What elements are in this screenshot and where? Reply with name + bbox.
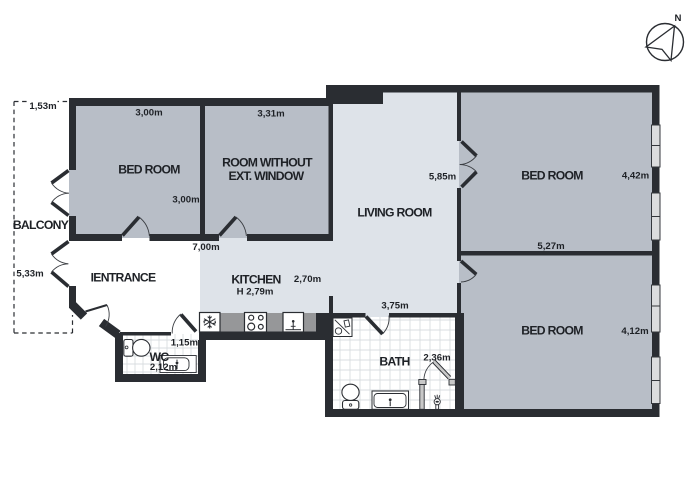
svg-text:BED ROOM: BED ROOM (521, 324, 583, 338)
svg-text:EXT. WINDOW: EXT. WINDOW (229, 169, 305, 183)
svg-text:4,12m: 4,12m (621, 326, 648, 337)
svg-text:BALCONY: BALCONY (13, 218, 69, 232)
svg-text:2,12m: 2,12m (150, 362, 177, 373)
svg-text:LIVING ROOM: LIVING ROOM (357, 206, 432, 220)
svg-text:5,85m: 5,85m (429, 172, 456, 183)
svg-text:BED ROOM: BED ROOM (521, 169, 583, 183)
svg-text:IENTRANCE: IENTRANCE (91, 270, 156, 284)
svg-text:KITCHEN: KITCHEN (231, 273, 280, 287)
svg-text:2,70m: 2,70m (294, 274, 321, 285)
svg-text:3,31m: 3,31m (257, 109, 284, 120)
svg-text:BATH: BATH (379, 355, 409, 369)
svg-text:2,36m: 2,36m (423, 353, 450, 364)
svg-text:N: N (675, 13, 682, 24)
svg-text:BED ROOM: BED ROOM (118, 163, 180, 177)
svg-text:4,42m: 4,42m (622, 171, 649, 182)
svg-text:7,00m: 7,00m (192, 242, 219, 253)
svg-text:5,27m: 5,27m (537, 241, 564, 252)
svg-text:3,00m: 3,00m (135, 108, 162, 119)
svg-text:3,75m: 3,75m (381, 301, 408, 312)
svg-text:1,53m: 1,53m (29, 101, 56, 112)
svg-text:ROOM WITHOUT: ROOM WITHOUT (222, 156, 313, 170)
svg-text:H 2,79m: H 2,79m (237, 287, 274, 298)
svg-text:3,00m: 3,00m (172, 195, 199, 206)
svg-text:5,33m: 5,33m (16, 268, 43, 279)
svg-text:1,15m: 1,15m (171, 338, 198, 349)
